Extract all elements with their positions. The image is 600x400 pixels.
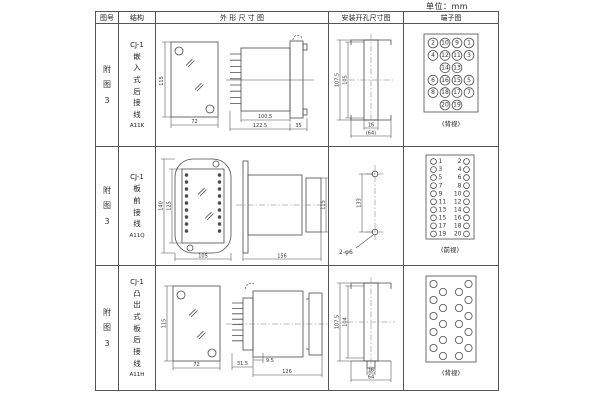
dim-front-width: 72: [191, 119, 197, 125]
header-outline-label: 外 形 尺 寸 图: [220, 13, 264, 23]
dim-depth-total: 122.5: [253, 123, 267, 129]
svg-text:1: 1: [439, 158, 443, 165]
dim-cutout-inner-w: 16: [368, 122, 374, 128]
dim-rear-height: 115: [321, 200, 327, 210]
svg-text:5: 5: [439, 174, 443, 181]
cutout-drawing-a11k: 107.5 105 16 (64): [329, 25, 403, 146]
view-caption: (背视): [442, 368, 460, 377]
front-view: 140 125 105: [159, 159, 232, 261]
svg-text:12: 12: [454, 198, 462, 205]
svg-text:16: 16: [441, 76, 449, 83]
cutout-dims: 133 2-φ6: [339, 174, 373, 256]
outline-cell-row2: 140 125 105 156 115: [156, 147, 329, 266]
terminal-circles: [430, 280, 472, 359]
outline-cell-row3: 115 72 31.5 9.5 126: [156, 266, 329, 390]
structure-cell-row1: CJ-1 嵌入式后接线 A11K: [119, 24, 156, 147]
header-structure-label: 结构: [130, 13, 144, 23]
outline-drawing-a11q: 140 125 105 156 115: [156, 148, 328, 265]
svg-text:14: 14: [454, 206, 462, 213]
mount-type-label: 嵌入式后接线: [133, 51, 142, 121]
cutout-dims: 107.5 105 16 (64): [335, 40, 392, 138]
dim-cutout-outer-w: (64): [366, 130, 376, 136]
dim-terminal-depth: 31.5: [237, 361, 248, 367]
svg-text:7: 7: [439, 182, 443, 189]
header-figure: 图号: [96, 12, 119, 24]
svg-text:5: 5: [467, 76, 471, 83]
dim-notch-width: 16: [368, 368, 374, 374]
document-page: 单位：mm 图号 结构 外 形 尺 寸 图 安装开孔尺寸图 端子图 附图3 CJ…: [0, 0, 600, 400]
terminal-cell-row1: 2109141211314136161558181772019 (背视): [404, 24, 498, 147]
cutout-shape: [349, 34, 393, 126]
svg-text:13: 13: [453, 64, 461, 71]
front-view: 115 72: [162, 286, 221, 370]
model-label: CJ-1: [130, 41, 144, 49]
svg-text:9: 9: [455, 39, 459, 46]
structure-cell-row3: CJ-1 凸出式板后接线 A11H: [119, 266, 156, 390]
svg-text:20: 20: [441, 101, 449, 108]
view-caption: (前视): [441, 245, 459, 254]
mount-type-label: 凸出式板后接线: [133, 288, 142, 369]
cutout-shape: [347, 277, 395, 373]
svg-text:11: 11: [453, 52, 461, 59]
dim-cutout-outer-h: 107.5: [335, 72, 341, 86]
dim-cutout-inner-h: 104: [343, 317, 349, 327]
header-cutout: 安装开孔尺寸图: [329, 12, 404, 24]
terminal-circles: 2109141211314136161558181772019: [428, 38, 474, 110]
svg-text:11: 11: [439, 198, 447, 205]
terminal-diagram-a11q: 1357911131517192468101214161820 (前视): [405, 148, 497, 265]
dim-depth-body: 100.5: [258, 114, 272, 120]
svg-text:15: 15: [439, 214, 447, 221]
view-caption: (背视): [442, 119, 460, 128]
code-label: A11H: [130, 372, 145, 378]
svg-text:7: 7: [467, 89, 471, 96]
cutout-cell-row3: 107.5 104 16 64: [329, 266, 404, 390]
hole-spec-label: 2-φ6: [339, 249, 353, 256]
terminal-diagram-a11h: (背视): [405, 267, 497, 389]
side-view: 156 115: [236, 161, 328, 261]
drill-holes: [366, 165, 384, 241]
svg-text:10: 10: [454, 190, 462, 197]
cutout-drawing-a11h: 107.5 104 16 64: [329, 267, 403, 389]
figure-label: 附图3: [102, 305, 112, 351]
front-view: 115 72: [159, 42, 218, 128]
header-figure-label: 图号: [100, 13, 114, 23]
svg-text:8: 8: [431, 89, 435, 96]
model-label: CJ-1: [130, 173, 144, 181]
outline-cell-row1: 115 72 100.5 122.5 35: [156, 24, 329, 147]
dim-panel-gap: 9.5: [266, 358, 274, 364]
svg-text:4: 4: [431, 52, 435, 59]
terminal-diagram-a11k: 2109141211314136161558181772019 (背视): [405, 25, 497, 146]
terminal-cell-row3: (背视): [404, 266, 498, 390]
mount-type-label: 板前接线: [133, 183, 142, 230]
header-terminal-label: 端子图: [441, 13, 462, 23]
dim-width: 105: [198, 253, 208, 259]
model-label: CJ-1: [130, 278, 144, 286]
svg-text:8: 8: [458, 182, 462, 189]
svg-text:16: 16: [454, 214, 462, 221]
dim-cutout-outer-h: 107.5: [335, 315, 341, 329]
figure-label: 附图3: [102, 183, 112, 229]
header-terminal: 端子图: [404, 12, 498, 24]
svg-text:9: 9: [439, 190, 443, 197]
outline-drawing-a11h: 115 72 31.5 9.5 126: [156, 267, 328, 389]
svg-text:20: 20: [454, 230, 462, 237]
dim-front-height: 115: [159, 76, 165, 86]
svg-text:2: 2: [431, 39, 435, 46]
svg-text:17: 17: [453, 89, 461, 96]
svg-text:3: 3: [439, 166, 443, 173]
spec-table: 图号 结构 外 形 尺 寸 图 安装开孔尺寸图 端子图 附图3 CJ-1 嵌入式…: [95, 11, 499, 391]
figure-cell-row2: 附图3: [96, 147, 119, 266]
svg-text:2: 2: [458, 158, 462, 165]
svg-text:4: 4: [458, 166, 462, 173]
dim-cutout-outer-w: 64: [368, 375, 374, 381]
svg-text:6: 6: [431, 76, 435, 83]
svg-text:18: 18: [441, 89, 449, 96]
dim-outer-height: 140: [159, 201, 165, 211]
svg-text:1: 1: [467, 39, 471, 46]
svg-text:12: 12: [441, 52, 449, 59]
structure-cell-row2: CJ-1 板前接线 A11Q: [119, 147, 156, 266]
svg-text:6: 6: [458, 174, 462, 181]
svg-text:19: 19: [453, 101, 461, 108]
dim-front-width: 72: [193, 362, 199, 368]
code-label: A11Q: [129, 233, 144, 239]
header-structure: 结构: [119, 12, 156, 24]
dim-front-height: 115: [162, 319, 168, 329]
figure-cell-row3: 附图3: [96, 266, 119, 390]
side-view: 31.5 9.5 126: [226, 283, 328, 377]
dim-hole-pitch: 133: [357, 198, 363, 208]
code-label: A11K: [130, 123, 144, 129]
svg-text:19: 19: [439, 230, 447, 237]
dim-flange: 35: [295, 123, 301, 129]
terminal-cell-row2: 1357911131517192468101214161820 (前视): [404, 147, 498, 266]
header-cutout-label: 安装开孔尺寸图: [342, 13, 391, 23]
cutout-cell-row2: 133 2-φ6: [329, 147, 404, 266]
cutout-drawing-a11q: 133 2-φ6: [329, 148, 403, 265]
svg-text:15: 15: [453, 76, 461, 83]
svg-text:13: 13: [439, 206, 447, 213]
svg-text:14: 14: [441, 64, 449, 71]
svg-text:3: 3: [467, 52, 471, 59]
cutout-cell-row1: 107.5 105 16 (64): [329, 24, 404, 147]
figure-label: 附图3: [102, 62, 112, 108]
side-view: 100.5 122.5 35: [226, 35, 314, 131]
dim-body-depth: 126: [282, 369, 292, 375]
svg-text:17: 17: [439, 222, 447, 229]
svg-text:18: 18: [454, 222, 462, 229]
svg-text:10: 10: [441, 39, 449, 46]
dim-inner-height: 125: [167, 201, 173, 211]
terminal-circles: 1357911131517192468101214161820: [431, 158, 470, 237]
outline-drawing-a11k: 115 72 100.5 122.5 35: [156, 25, 328, 146]
dim-depth: 156: [277, 253, 287, 259]
dim-cutout-inner-h: 105: [343, 75, 349, 85]
cutout-dims: 107.5 104 16 64: [335, 283, 392, 382]
figure-cell-row1: 附图3: [96, 24, 119, 147]
header-outline: 外 形 尺 寸 图: [156, 12, 329, 24]
